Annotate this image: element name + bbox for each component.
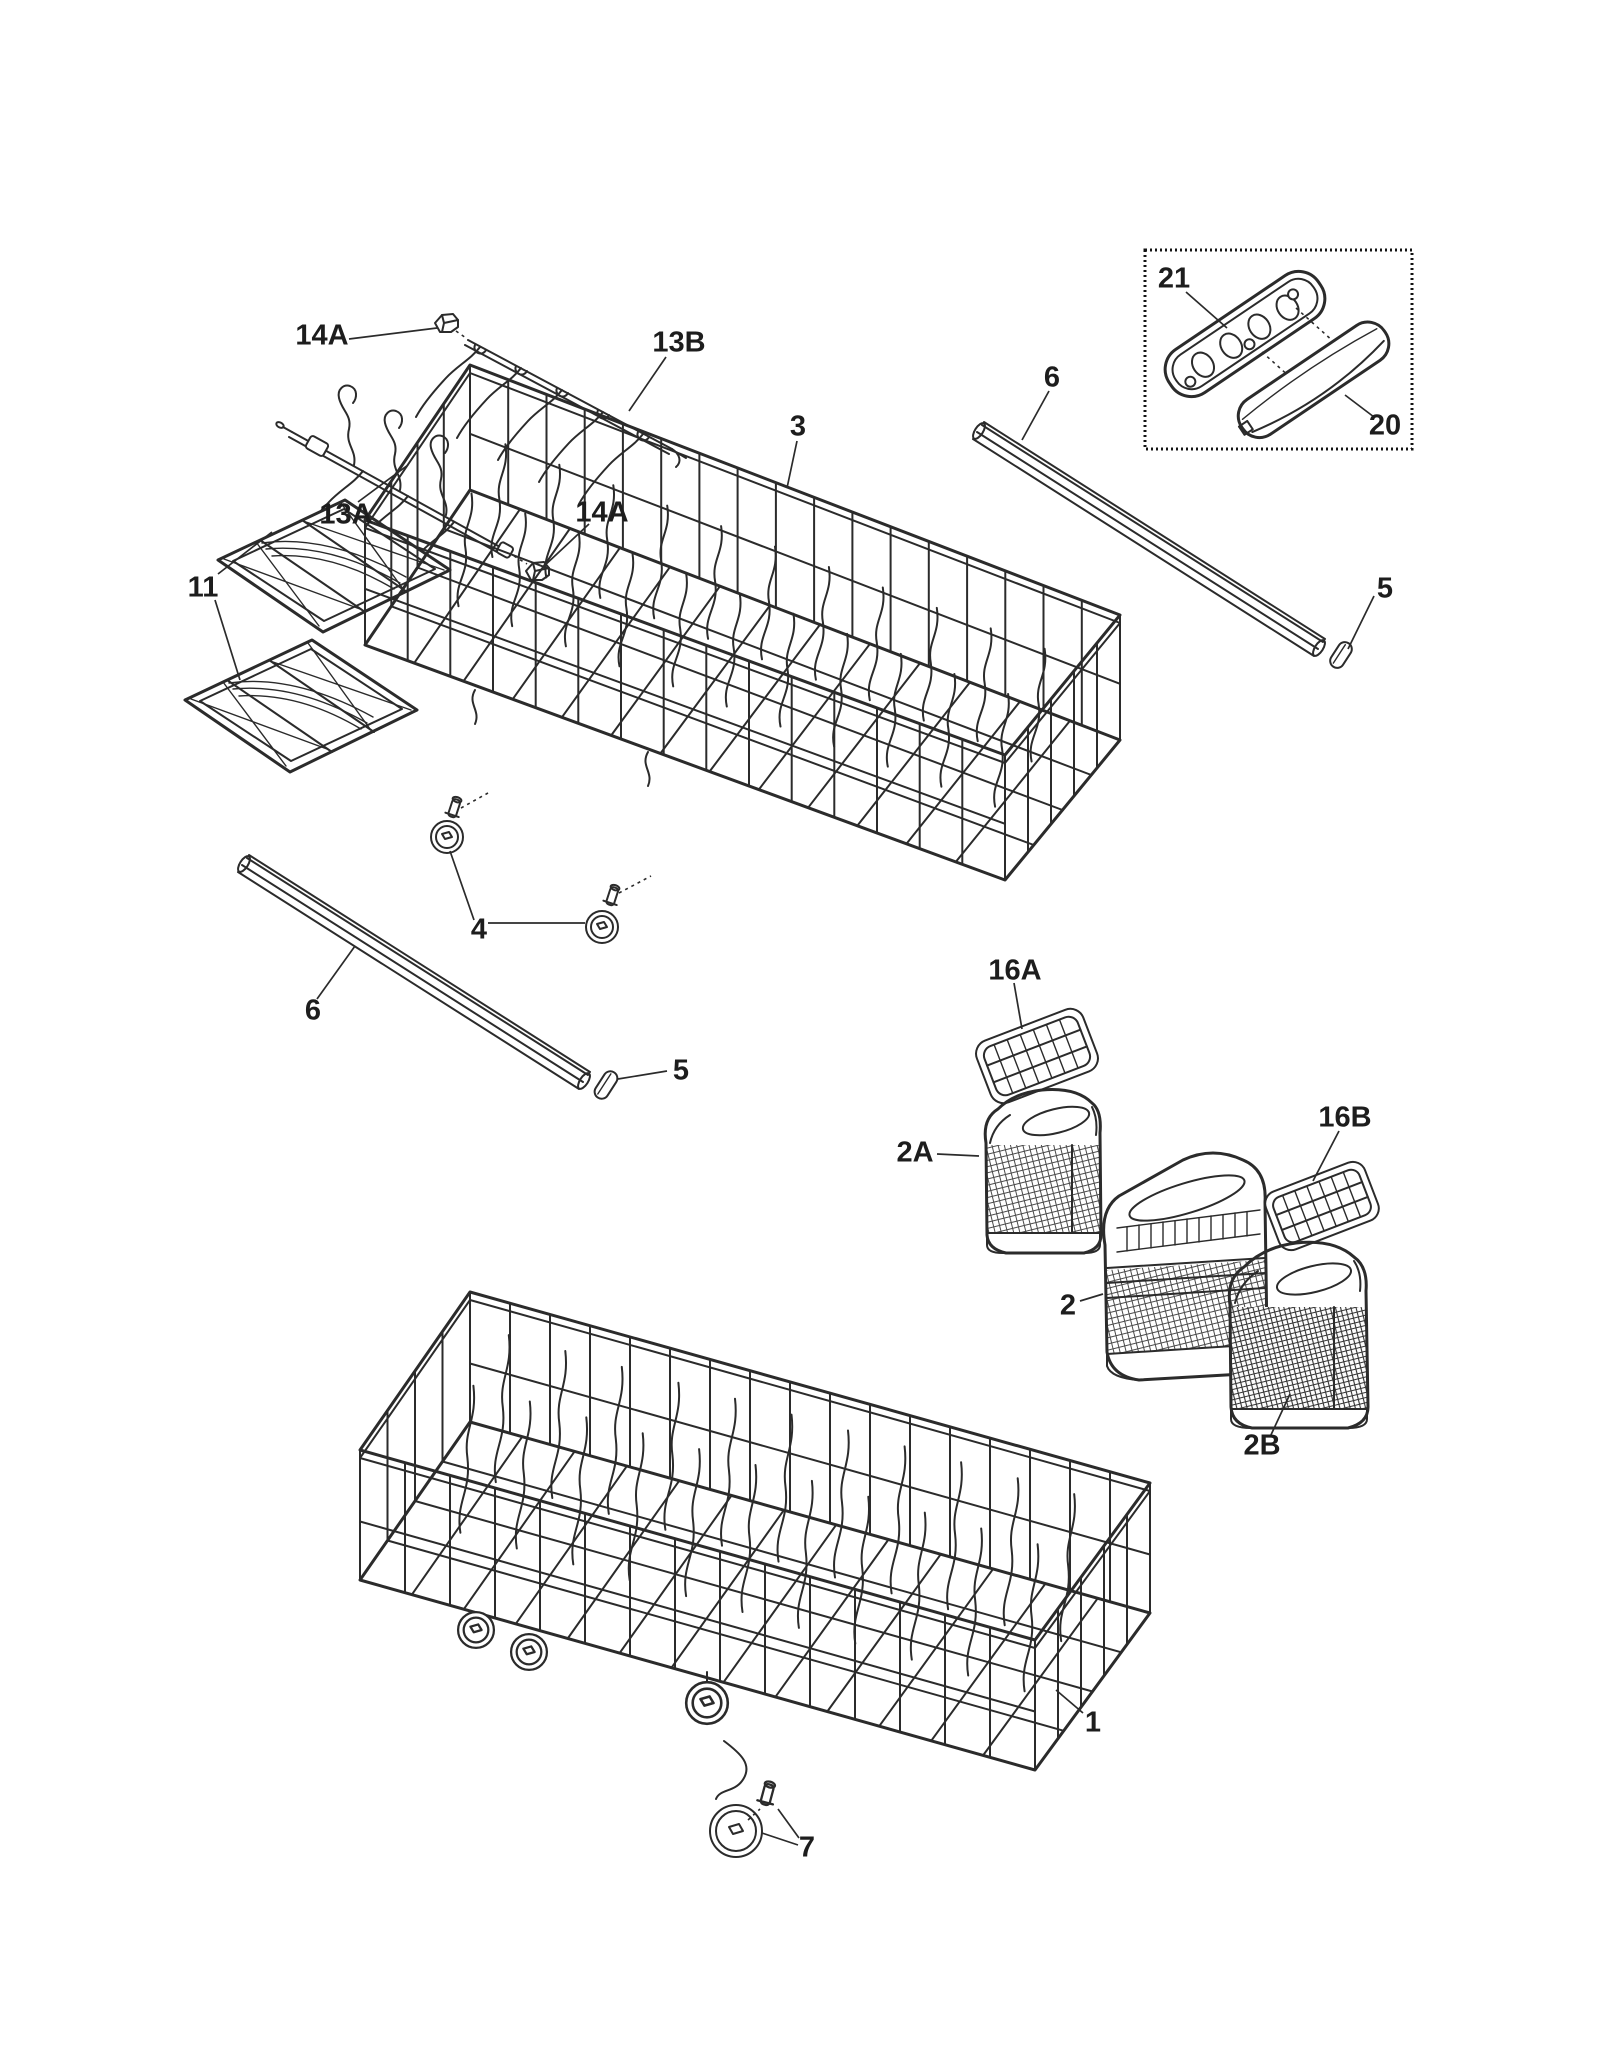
- callout-2: 2: [1060, 1290, 1076, 1323]
- rack-wire: [726, 594, 741, 707]
- rack-wire: [672, 1510, 784, 1668]
- callout-5-left: 5: [673, 1055, 689, 1088]
- rack-wire: [516, 1466, 627, 1624]
- callout-14a-bottom: 14A: [575, 497, 628, 530]
- callout-2a: 2A: [896, 1137, 933, 1170]
- callout-16b: 16B: [1318, 1102, 1371, 1135]
- rack-wire: [391, 606, 1034, 845]
- rack-wire: [911, 1513, 926, 1660]
- callout-2b: 2B: [1243, 1430, 1280, 1463]
- rack-wire: [721, 1399, 736, 1546]
- callout-6-left: 6: [305, 995, 321, 1028]
- rack-wire: [551, 1351, 566, 1498]
- rack-wire: [459, 1386, 474, 1533]
- basket-lid-16b-drawing: [1261, 1158, 1382, 1254]
- callout-5-right: 5: [1377, 573, 1393, 606]
- rack-wire: [516, 1402, 531, 1549]
- right-rail-6-drawing: [971, 421, 1355, 670]
- leader-lines: [215, 292, 1374, 1845]
- rack-wire: [891, 1446, 906, 1593]
- callout-6-right: 6: [1044, 362, 1060, 395]
- rack-wire: [365, 373, 1120, 763]
- rack-wire: [742, 1465, 757, 1612]
- rack-wire: [724, 1525, 837, 1683]
- rack-wire: [834, 1431, 849, 1578]
- callout-1: 1: [1085, 1707, 1101, 1740]
- rack-wire: [464, 1451, 575, 1609]
- callout-20: 20: [1369, 410, 1401, 443]
- upper-rack-drawing: [365, 365, 1120, 880]
- callout-16a: 16A: [988, 955, 1041, 988]
- callout-3: 3: [790, 411, 806, 444]
- wheel-assembly-7-drawing: [710, 1741, 778, 1857]
- rack-wire: [685, 1449, 700, 1596]
- callout-13a: 13A: [319, 499, 372, 532]
- rack-wire: [1060, 1494, 1075, 1641]
- rack-wire: [495, 1335, 510, 1482]
- lower-rack-drawing: [360, 1292, 1150, 1770]
- rack-wire: [827, 1554, 941, 1711]
- rack-wire: [470, 1364, 1150, 1555]
- callout-4: 4: [471, 914, 487, 947]
- silverware-basket-2a-drawing: [985, 1090, 1101, 1253]
- rail-end-cap-5-left: [592, 1069, 620, 1102]
- rack-wire: [664, 1383, 679, 1530]
- parts-diagram-page: 14A 13B 13A 14A 11 3 6 21 20 5 4 6 5 16A…: [0, 0, 1600, 2071]
- rack-wire: [608, 1367, 623, 1514]
- rack-wire: [443, 1462, 1122, 1653]
- callout-14a-top: 14A: [295, 320, 348, 353]
- rollers-4-drawing: [431, 690, 651, 943]
- rack-wire: [879, 1569, 993, 1726]
- lower-rack-wheels-drawing: [458, 1612, 728, 1724]
- rack-wire: [775, 1540, 888, 1697]
- rack-wire: [365, 490, 1120, 880]
- rack-wire: [1004, 1478, 1019, 1625]
- rack-wire: [672, 574, 687, 687]
- left-rail-6-drawing: [236, 854, 620, 1101]
- diagram-canvas: [0, 0, 1600, 2071]
- tine-row-13b-drawing: [416, 314, 686, 504]
- rack-wire: [360, 1522, 1035, 1712]
- clip-14a-top: [435, 314, 458, 332]
- callout-7: 7: [799, 1832, 815, 1865]
- callout-21: 21: [1158, 263, 1190, 296]
- tine-panels-11-drawing: [185, 500, 450, 772]
- callout-13b: 13B: [652, 327, 705, 360]
- callout-11: 11: [188, 572, 219, 605]
